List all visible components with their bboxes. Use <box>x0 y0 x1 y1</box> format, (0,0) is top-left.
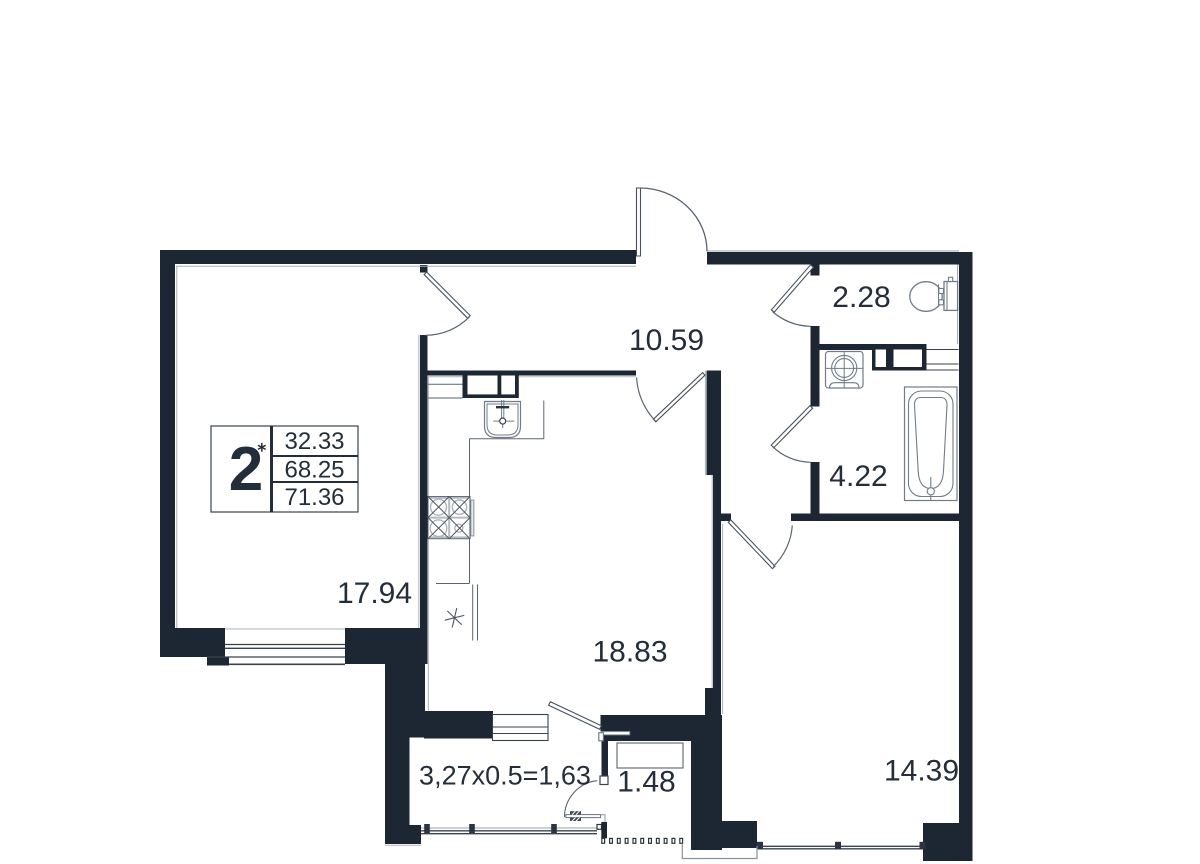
svg-text:4.22: 4.22 <box>829 460 887 493</box>
svg-text:3,27x0.5=1,63: 3,27x0.5=1,63 <box>419 760 591 790</box>
svg-text:68.25: 68.25 <box>284 457 344 484</box>
svg-text:10.59: 10.59 <box>629 324 704 357</box>
svg-text:1.48: 1.48 <box>617 765 675 798</box>
svg-text:32.33: 32.33 <box>284 428 344 455</box>
svg-text:71.36: 71.36 <box>284 484 344 511</box>
svg-text:18.83: 18.83 <box>592 636 667 669</box>
svg-text:14.39: 14.39 <box>884 754 959 787</box>
svg-text:17.94: 17.94 <box>337 577 412 610</box>
svg-text:2.28: 2.28 <box>832 281 890 314</box>
